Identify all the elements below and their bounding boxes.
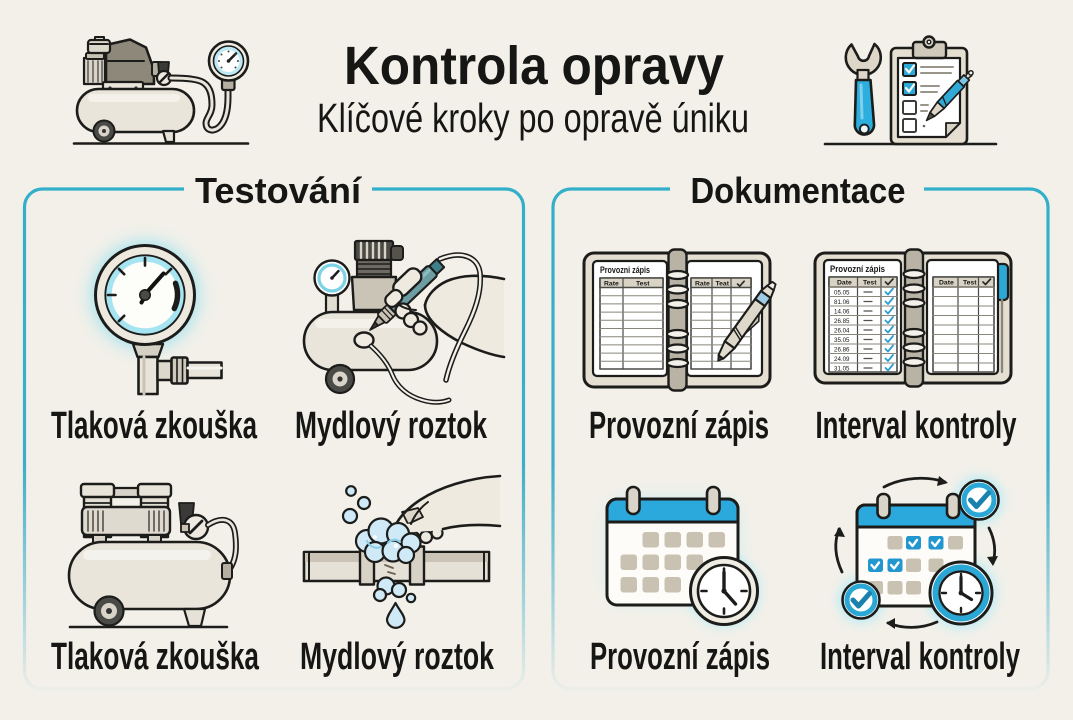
svg-text:Date: Date (837, 280, 852, 287)
svg-text:Date: Date (939, 280, 954, 287)
svg-text:26.04: 26.04 (834, 328, 850, 335)
svg-text:31.05: 31.05 (834, 366, 850, 373)
svg-text:Interval kontroly: Interval kontroly (820, 636, 1020, 678)
svg-text:14.06: 14.06 (834, 309, 850, 316)
svg-text:Teat: Teat (716, 281, 730, 288)
svg-text:Rate: Rate (604, 281, 619, 288)
svg-text:Test: Test (636, 281, 650, 288)
svg-text:Provozní zápis: Provozní zápis (830, 264, 885, 274)
svg-text:Mydlový roztok: Mydlový roztok (295, 405, 488, 447)
svg-text:Rate: Rate (695, 281, 710, 288)
svg-text:Mydlový roztok: Mydlový roztok (300, 636, 495, 678)
svg-text:Test: Test (863, 280, 877, 287)
svg-text:Provozní zápis: Provozní zápis (589, 405, 769, 447)
svg-text:Kontrola opravy: Kontrola opravy (344, 36, 724, 96)
svg-text:81.06: 81.06 (834, 299, 850, 306)
svg-text:Dokumentace: Dokumentace (691, 170, 906, 211)
svg-text:Tlaková zkouška: Tlaková zkouška (51, 405, 258, 447)
svg-text:Klíčové kroky po opravě úniku: Klíčové kroky po opravě úniku (317, 95, 749, 141)
svg-text:26.86: 26.86 (834, 347, 850, 354)
svg-text:Test: Test (963, 280, 977, 287)
svg-text:24.09: 24.09 (834, 356, 850, 363)
svg-text:26.85: 26.85 (834, 318, 850, 325)
svg-text:Tlaková zkouška: Tlaková zkouška (51, 636, 260, 678)
svg-text:Testování: Testování (195, 170, 362, 211)
svg-text:35.05: 35.05 (834, 337, 850, 344)
svg-text:Interval kontroly: Interval kontroly (816, 405, 1017, 447)
svg-text:05.05: 05.05 (834, 290, 850, 297)
svg-text:Provozni zápis: Provozni zápis (600, 265, 650, 275)
svg-text:Provozní zápis: Provozní zápis (590, 636, 770, 678)
